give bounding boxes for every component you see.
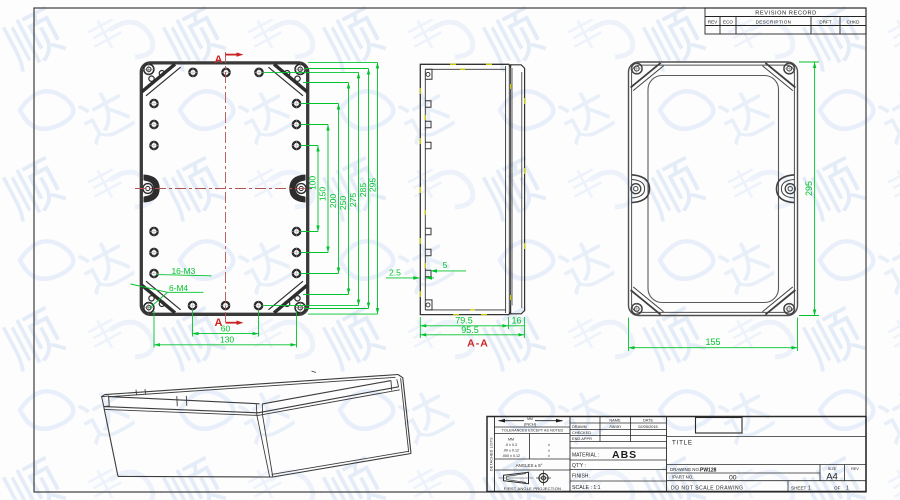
svg-text:REV: REV [851, 467, 859, 471]
svg-text:FINISH:: FINISH: [572, 474, 590, 480]
svg-text:SCALE : 1:1: SCALE : 1:1 [572, 485, 601, 491]
svg-text:CHECKED: CHECKED [572, 430, 591, 435]
svg-text:100: 100 [308, 176, 318, 191]
svg-text:.0 ± 0.3: .0 ± 0.3 [505, 443, 517, 447]
svg-text:130: 130 [220, 335, 235, 345]
svg-text:REVISION RECORD: REVISION RECORD [755, 11, 817, 17]
svg-text:±: ± [548, 454, 550, 458]
svg-text:±: ± [548, 443, 550, 447]
svg-text:±: ± [548, 449, 550, 453]
svg-text:6-M4: 6-M4 [169, 283, 188, 293]
svg-text:.000 ± 0.12: .000 ± 0.12 [502, 454, 520, 458]
svg-text:5: 5 [443, 260, 448, 270]
svg-text:A-A: A-A [467, 338, 489, 350]
svg-text:NAME: NAME [609, 418, 621, 423]
svg-text:TOLERANCES EXCEPT AS NOTED: TOLERANCES EXCEPT AS NOTED [502, 429, 564, 433]
svg-text:DRFT: DRFT [819, 19, 831, 24]
svg-text:16: 16 [511, 315, 521, 325]
svg-text:FIRST ANGLE PROJECTION: FIRST ANGLE PROJECTION [504, 486, 561, 491]
svg-text:250: 250 [338, 196, 348, 211]
svg-text:REV: REV [708, 19, 718, 24]
svg-text:SIZE: SIZE [828, 467, 837, 471]
svg-text:DRAWING NO.: DRAWING NO. [670, 467, 700, 472]
svg-text:MATERIAL :: MATERIAL : [572, 453, 599, 459]
svg-text:MM: MM [508, 438, 514, 442]
svg-text:QT'Y :: QT'Y : [572, 463, 586, 469]
svg-text:295: 295 [804, 181, 814, 196]
svg-text:2.5: 2.5 [389, 267, 401, 277]
svg-text:OF: OF [834, 485, 841, 490]
svg-text:ENG APPR: ENG APPR [572, 436, 592, 441]
svg-text:MM: MM [527, 417, 533, 421]
svg-text:DO NOT SCALE DRAWING: DO NOT SCALE DRAWING [671, 485, 744, 491]
svg-text:DESCRIPTION: DESCRIPTION [756, 19, 792, 24]
svg-text:ABS: ABS [612, 449, 637, 461]
svg-text:TITLE: TITLE [672, 440, 693, 447]
svg-text:CHKD: CHKD [846, 19, 860, 24]
svg-text:1: 1 [846, 485, 849, 491]
svg-text:/PART NO.: /PART NO. [672, 475, 693, 480]
svg-text:200: 200 [328, 194, 338, 209]
svg-text:(INCH): (INCH) [524, 422, 537, 427]
svg-text:PW128: PW128 [700, 467, 717, 473]
svg-text:DRAWN: DRAWN [572, 424, 587, 429]
svg-text:79.5: 79.5 [455, 315, 473, 325]
svg-text:95.5: 95.5 [461, 325, 479, 335]
svg-text:A4: A4 [826, 472, 838, 483]
svg-text:1: 1 [808, 485, 811, 491]
svg-text:ECO: ECO [723, 19, 733, 24]
svg-text:ANGLES ± 5°: ANGLES ± 5° [516, 463, 543, 468]
svg-text:00: 00 [729, 475, 737, 482]
svg-text:02/05/2015: 02/05/2015 [638, 424, 657, 429]
svg-text:DETACHED LISTS: DETACHED LISTS [490, 437, 494, 471]
svg-text:155: 155 [705, 337, 720, 347]
svg-text:Aaron: Aaron [609, 424, 621, 429]
svg-text:295: 295 [368, 178, 378, 193]
svg-text:150: 150 [318, 187, 328, 202]
svg-text:275: 275 [348, 193, 358, 208]
svg-text:.00 ± 0.12: .00 ± 0.12 [503, 449, 519, 453]
svg-text:DATE: DATE [643, 418, 653, 423]
svg-text:60: 60 [221, 324, 231, 334]
svg-text:A: A [215, 54, 223, 66]
svg-text:SHEET: SHEET [791, 485, 807, 490]
